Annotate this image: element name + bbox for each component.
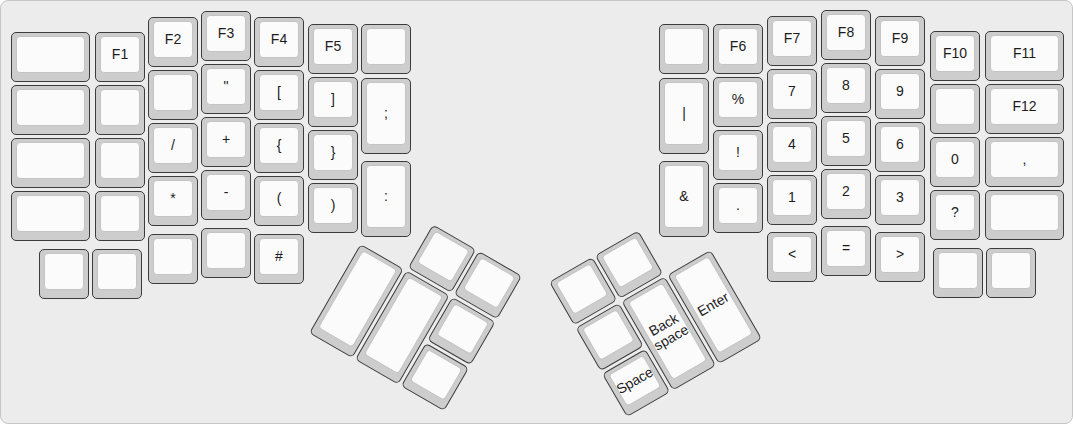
key-blank[interactable] [11, 85, 90, 135]
key-f11[interactable]: F11 [985, 31, 1064, 81]
keycap-top: / [153, 127, 193, 164]
keycap-top [100, 89, 140, 126]
key-label: Back space [643, 309, 691, 355]
key-label: % [732, 92, 744, 107]
key-label: & [679, 189, 688, 204]
key-bracket-close[interactable]: ] [308, 77, 358, 127]
key-9[interactable]: 9 [875, 69, 925, 119]
key-double-quote[interactable]: " [201, 64, 251, 114]
keycap-top: 1 [772, 179, 812, 216]
keycap-top [16, 89, 85, 126]
keycap-top [938, 252, 978, 289]
key-label: F8 [838, 25, 854, 40]
keycap-top: F3 [206, 15, 246, 52]
key-label: F6 [730, 39, 746, 54]
key-blank[interactable] [95, 85, 145, 135]
key-label: Enter [695, 290, 732, 320]
key-f6[interactable]: F6 [713, 24, 763, 74]
key-f4[interactable]: F4 [254, 17, 304, 67]
key-label: 9 [896, 84, 904, 99]
keycap-top: F12 [990, 88, 1059, 125]
keycap-top [417, 230, 470, 282]
key-asterisk[interactable]: * [148, 176, 198, 226]
keyboard-canvas: F1F2F3F4F5"[];/+{}*-():#SpaceBack spaceE… [0, 0, 1073, 424]
keycap-top: 7 [772, 73, 812, 110]
keycap-top: = [826, 230, 866, 267]
keycap-top: " [206, 68, 246, 105]
key-label: ; [384, 106, 388, 121]
key-label: F11 [1013, 46, 1036, 61]
keycap-top: 9 [880, 73, 920, 110]
key-blank[interactable] [95, 138, 145, 188]
key-less-than[interactable]: < [767, 232, 817, 282]
key-blank[interactable] [95, 191, 145, 241]
key-blank[interactable] [930, 84, 980, 134]
key-slash[interactable]: / [148, 123, 198, 173]
key-label: : [384, 189, 388, 204]
keycap-top: F2 [153, 21, 193, 58]
key-label: F9 [892, 31, 908, 46]
key-label: Space [614, 364, 656, 397]
keycap-top [664, 28, 704, 65]
key-blank[interactable] [39, 249, 89, 299]
keycap-top: 0 [935, 141, 975, 178]
key-label: 8 [842, 78, 850, 93]
keycap-top: ; [366, 82, 406, 145]
keycap-top: + [206, 121, 246, 158]
key-equals[interactable]: = [821, 226, 871, 276]
key-label: ) [331, 198, 336, 213]
keycap-top: 5 [826, 120, 866, 157]
keycap-top [100, 142, 140, 179]
key-blank[interactable] [659, 24, 709, 74]
keycap-top [97, 253, 137, 290]
keycap-top: F11 [990, 35, 1059, 72]
key-label: ( [277, 191, 282, 206]
keycap-top [555, 263, 608, 315]
key-minus[interactable]: - [201, 170, 251, 220]
key-4[interactable]: 4 [767, 122, 817, 172]
key-label: { [277, 138, 282, 153]
key-label: , [1023, 152, 1027, 167]
keycap-top: * [153, 180, 193, 217]
key-paren-close[interactable]: ) [308, 183, 358, 233]
key-blank[interactable] [148, 70, 198, 120]
key-label: - [224, 185, 229, 200]
key-label: 2 [842, 184, 850, 199]
keycap-top [991, 252, 1031, 289]
keycap-top [601, 236, 654, 288]
keycap-top: | [664, 82, 704, 145]
key-greater-than[interactable]: > [875, 232, 925, 282]
key-label: 0 [951, 152, 959, 167]
key-brace-close[interactable]: } [308, 130, 358, 180]
key-hash[interactable]: # [254, 234, 304, 284]
keycap-top: 4 [772, 126, 812, 163]
key-0[interactable]: 0 [930, 137, 980, 187]
key-pipe[interactable]: | [659, 78, 709, 154]
key-blank[interactable] [201, 228, 251, 278]
key-label: F5 [325, 39, 341, 54]
key-label: [ [277, 85, 281, 100]
key-2[interactable]: 2 [821, 169, 871, 219]
key-question[interactable]: ? [930, 190, 980, 240]
keycap-top: # [259, 238, 299, 275]
key-f9[interactable]: F9 [875, 16, 925, 66]
keycap-top: . [718, 187, 758, 224]
keycap-top [16, 142, 85, 179]
keycap-top: Space [608, 355, 661, 407]
keycap-top [153, 238, 193, 275]
keycap-top: F5 [313, 28, 353, 65]
keycap-top: 6 [880, 126, 920, 163]
key-label: } [331, 145, 336, 160]
key-label: 7 [788, 84, 796, 99]
keycap-top [16, 195, 85, 232]
key-blank[interactable] [11, 32, 90, 82]
keycap-top: F9 [880, 20, 920, 57]
keycap-top: - [206, 174, 246, 211]
key-paren-open[interactable]: ( [254, 176, 304, 226]
keycap-top: 2 [826, 173, 866, 210]
keycap-top: , [990, 141, 1059, 178]
key-f7[interactable]: F7 [767, 16, 817, 66]
keycap-top [206, 232, 246, 269]
key-blank[interactable] [148, 234, 198, 284]
keycap-top [463, 257, 516, 309]
key-label: | [682, 106, 686, 121]
key-comma[interactable]: , [985, 137, 1064, 187]
keycap-top: ] [313, 81, 353, 118]
key-blank[interactable] [361, 24, 411, 74]
keycap-top: & [664, 165, 704, 228]
keycap-top [100, 195, 140, 232]
key-label: + [222, 132, 230, 147]
keycap-top [935, 88, 975, 125]
key-label: . [736, 198, 740, 213]
key-blank[interactable] [11, 191, 90, 241]
key-label: F1 [112, 47, 128, 62]
key-3[interactable]: 3 [875, 175, 925, 225]
key-semicolon[interactable]: ; [361, 78, 411, 154]
key-plus[interactable]: + [201, 117, 251, 167]
keycap-top: F10 [935, 35, 975, 72]
key-label: > [896, 247, 904, 262]
keycap-top: [ [259, 74, 299, 111]
key-period[interactable]: . [713, 183, 763, 233]
keycap-top: F7 [772, 20, 812, 57]
key-f8[interactable]: F8 [821, 10, 871, 60]
keycap-top: % [718, 81, 758, 118]
key-label: ! [736, 145, 740, 160]
key-label: F2 [165, 32, 181, 47]
keycap-top: < [772, 236, 812, 273]
key-label: F12 [1012, 99, 1036, 114]
key-f2[interactable]: F2 [148, 17, 198, 67]
keycap-top: } [313, 134, 353, 171]
key-ampersand[interactable]: & [659, 161, 709, 237]
keycap-top: F6 [718, 28, 758, 65]
key-f12[interactable]: F12 [985, 84, 1064, 134]
key-bracket-open[interactable]: [ [254, 70, 304, 120]
key-1[interactable]: 1 [767, 175, 817, 225]
key-5[interactable]: 5 [821, 116, 871, 166]
key-f10[interactable]: F10 [930, 31, 980, 81]
key-label: = [842, 241, 850, 256]
keycap-top: F8 [826, 14, 866, 51]
key-label: 4 [788, 137, 796, 152]
keycap-top [153, 74, 193, 111]
keycap-top: : [366, 165, 406, 228]
key-label: F10 [943, 46, 967, 61]
key-brace-open[interactable]: { [254, 123, 304, 173]
key-label: 1 [788, 190, 796, 205]
keycap-top: > [880, 236, 920, 273]
key-label: F7 [784, 31, 800, 46]
key-label: ] [331, 92, 335, 107]
key-blank[interactable] [92, 249, 142, 299]
keycap-top [582, 309, 635, 361]
keycap-top: ? [935, 194, 975, 231]
keycap-top: 3 [880, 179, 920, 216]
keycap-top: 8 [826, 67, 866, 104]
key-8[interactable]: 8 [821, 63, 871, 113]
keycap-top [990, 194, 1059, 231]
key-label: 5 [842, 131, 850, 146]
key-blank[interactable] [933, 248, 983, 298]
key-label: / [171, 138, 175, 153]
keycap-top: F4 [259, 21, 299, 58]
keycap-top: { [259, 127, 299, 164]
keycap-top [44, 253, 84, 290]
key-label: " [224, 79, 229, 94]
keycap-top [16, 36, 85, 73]
key-label: ? [951, 205, 959, 220]
key-blank[interactable] [11, 138, 90, 188]
keycap-top: F1 [100, 36, 140, 73]
key-label: 3 [896, 190, 904, 205]
key-label: F3 [218, 26, 234, 41]
key-label: < [788, 247, 796, 262]
key-f1[interactable]: F1 [95, 32, 145, 82]
key-percent[interactable]: % [713, 77, 763, 127]
keycap-top: ! [718, 134, 758, 171]
keycap-top: ) [313, 187, 353, 224]
key-label: # [275, 249, 283, 264]
key-exclamation[interactable]: ! [713, 130, 763, 180]
key-label: 6 [896, 137, 904, 152]
key-f3[interactable]: F3 [201, 11, 251, 61]
key-6[interactable]: 6 [875, 122, 925, 172]
key-7[interactable]: 7 [767, 69, 817, 119]
key-label: * [170, 191, 175, 206]
key-label: F4 [271, 32, 287, 47]
keycap-top [366, 28, 406, 65]
key-colon[interactable]: : [361, 161, 411, 237]
key-blank[interactable] [985, 190, 1064, 240]
keycap-top: ( [259, 180, 299, 217]
key-blank[interactable] [986, 248, 1036, 298]
key-f5[interactable]: F5 [308, 24, 358, 74]
